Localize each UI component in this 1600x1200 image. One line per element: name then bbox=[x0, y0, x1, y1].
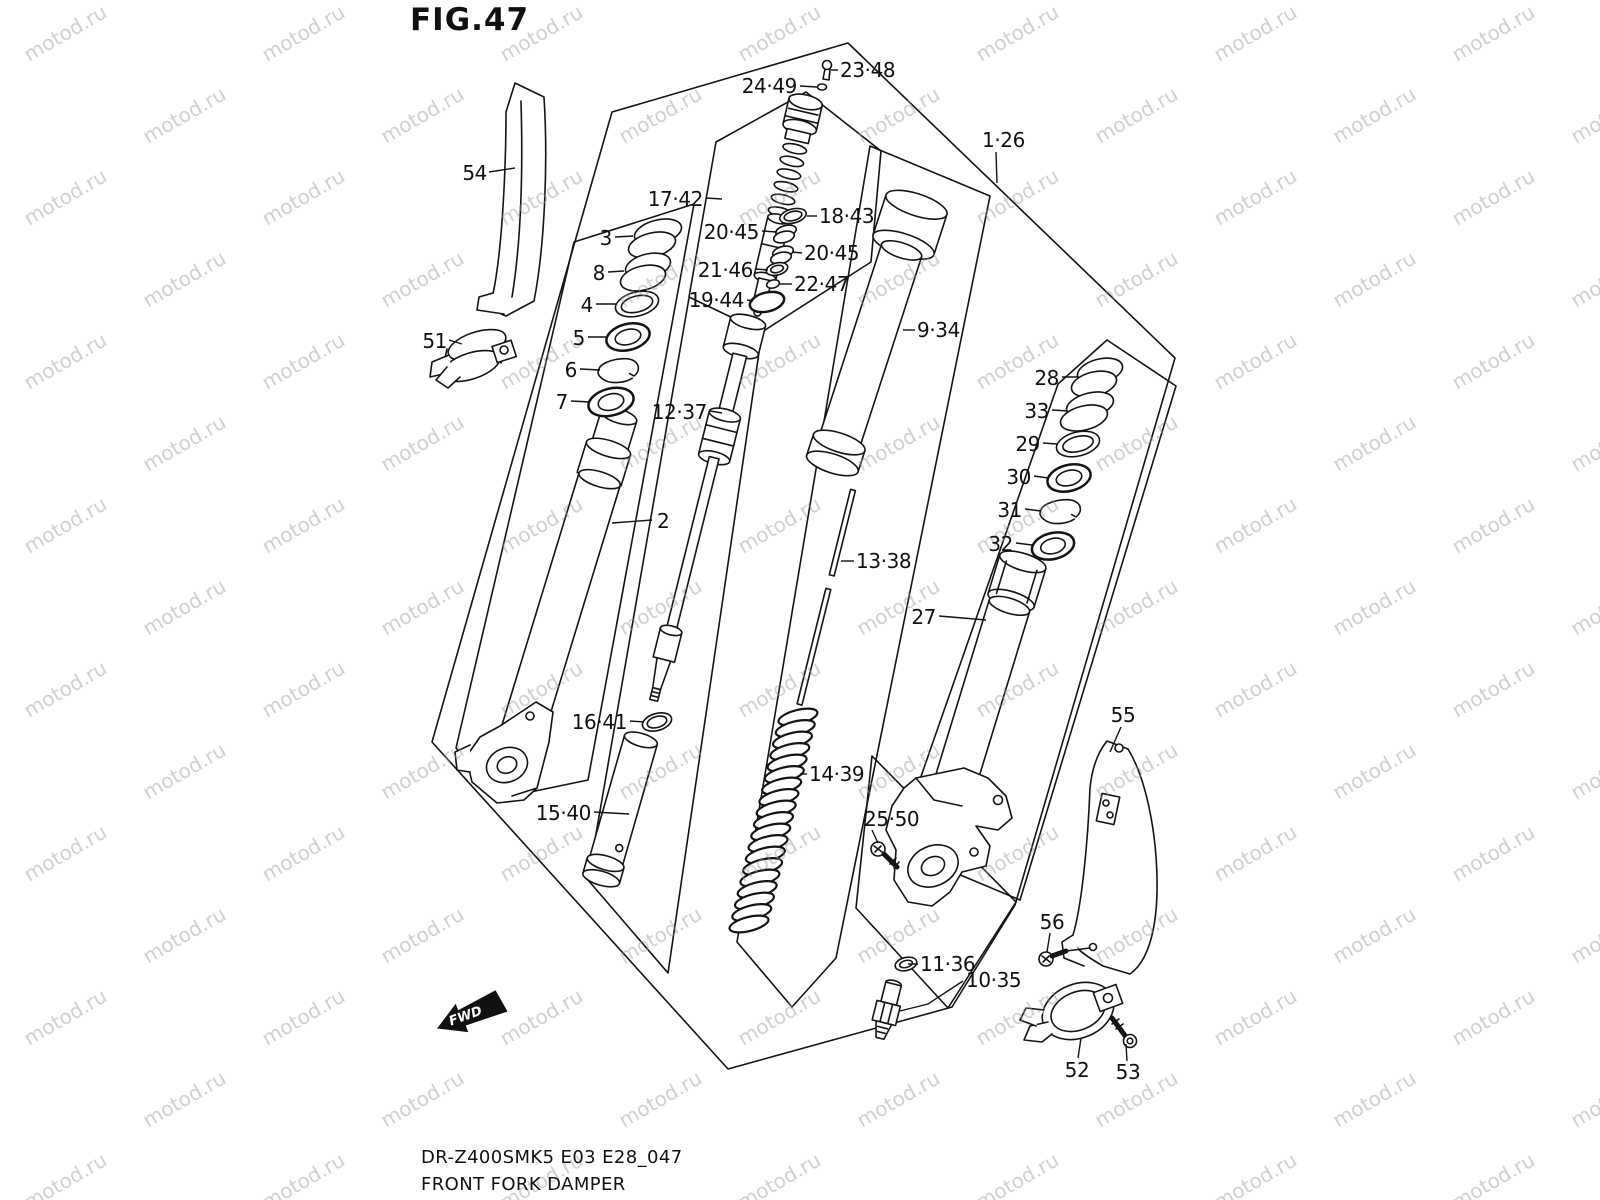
part-label-16-23·48: 23·48 bbox=[840, 58, 895, 82]
watermark-text: motod.ru bbox=[496, 820, 587, 887]
oil-seal-30 bbox=[1045, 460, 1094, 496]
part-label-26-28: 28 bbox=[1034, 366, 1059, 390]
watermark-text: motod.ru bbox=[1448, 656, 1539, 723]
watermark-text: motod.ru bbox=[377, 410, 468, 477]
leader-line-23-16·41 bbox=[630, 721, 644, 722]
leader-line-8-2 bbox=[612, 520, 652, 523]
watermark-text: motod.ru bbox=[1448, 984, 1539, 1051]
watermark-text: motod.ru bbox=[20, 820, 111, 887]
watermark-text: motod.ru bbox=[20, 492, 111, 559]
watermark-text: motod.ru bbox=[1210, 0, 1301, 66]
watermark-text: motod.ru bbox=[20, 0, 111, 66]
o-ring-19-44 bbox=[748, 289, 787, 316]
snap-ring-6 bbox=[597, 356, 641, 385]
part-label-33-25·50: 25·50 bbox=[864, 807, 919, 831]
part-label-10-18·43: 18·43 bbox=[819, 204, 874, 228]
part-label-36-56: 56 bbox=[1040, 910, 1065, 934]
part-label-1-51: 51 bbox=[422, 329, 447, 353]
part-label-31-32: 32 bbox=[988, 532, 1013, 556]
part-label-19-9·34: 9·34 bbox=[917, 318, 960, 342]
leader-line-7-7 bbox=[571, 401, 590, 402]
damper-valve-10-35 bbox=[868, 978, 906, 1042]
part-label-8-2: 2 bbox=[657, 509, 669, 533]
exploded-parts-diagram: FWD motod.rumotod.rumotod.rumotod.rumoto… bbox=[0, 0, 1600, 1200]
part-label-4-4: 4 bbox=[581, 293, 593, 317]
watermark-text: motod.ru bbox=[1567, 1066, 1600, 1133]
watermark-text: motod.ru bbox=[1567, 82, 1600, 149]
footer-model-code: DR-Z400SMK5 E03 E28_047 bbox=[421, 1147, 683, 1168]
watermark-text: motod.ru bbox=[377, 574, 468, 641]
stopper-ring-16-41 bbox=[640, 710, 674, 735]
part-label-0-54: 54 bbox=[462, 161, 487, 185]
footer-figure-caption: FRONT FORK DAMPER bbox=[421, 1174, 626, 1195]
screw-23-48 bbox=[823, 61, 832, 81]
watermark-text: motod.ru bbox=[734, 1148, 825, 1200]
watermark-text: motod.ru bbox=[972, 0, 1063, 66]
watermark-text: motod.ru bbox=[1210, 984, 1301, 1051]
watermark-text: motod.ru bbox=[1448, 1148, 1539, 1200]
part-label-38-53: 53 bbox=[1116, 1060, 1141, 1084]
watermark-layer: motod.rumotod.rumotod.rumotod.rumotod.ru… bbox=[0, 0, 1600, 1200]
watermark-text: motod.ru bbox=[139, 82, 230, 149]
part-label-11-20·45: 20·45 bbox=[704, 220, 759, 244]
watermark-text: motod.ru bbox=[258, 820, 349, 887]
watermark-text: motod.ru bbox=[734, 0, 825, 66]
watermark-text: motod.ru bbox=[734, 984, 825, 1051]
part-label-3-8: 8 bbox=[593, 261, 605, 285]
leader-line-3-8 bbox=[608, 271, 624, 272]
leader-line-37-52 bbox=[1078, 1038, 1081, 1058]
part-label-12-20·45: 20·45 bbox=[804, 241, 859, 265]
watermark-text: motod.ru bbox=[139, 902, 230, 969]
leader-line-17-24·49 bbox=[800, 86, 817, 87]
watermark-text: motod.ru bbox=[1091, 574, 1182, 641]
watermark-text: motod.ru bbox=[496, 984, 587, 1051]
axle-holder-right bbox=[886, 768, 1012, 906]
part-label-27-33: 33 bbox=[1024, 399, 1049, 423]
leader-line-12-20·45 bbox=[792, 252, 802, 253]
watermark-text: motod.ru bbox=[139, 1066, 230, 1133]
watermark-text: motod.ru bbox=[139, 410, 230, 477]
watermark-text: motod.ru bbox=[377, 738, 468, 805]
watermark-text: motod.ru bbox=[1210, 164, 1301, 231]
leader-line-18-1·26 bbox=[996, 152, 997, 183]
watermark-text: motod.ru bbox=[615, 82, 706, 149]
part-label-23-16·41: 16·41 bbox=[572, 710, 627, 734]
watermark-text: motod.ru bbox=[1448, 820, 1539, 887]
part-label-9-17·42: 17·42 bbox=[648, 187, 703, 211]
watermark-text: motod.ru bbox=[377, 82, 468, 149]
leader-line-15-19·44 bbox=[747, 300, 753, 301]
part-label-21-13·38: 13·38 bbox=[856, 549, 911, 573]
watermark-text: motod.ru bbox=[972, 1148, 1063, 1200]
watermark-text: motod.ru bbox=[1329, 246, 1420, 313]
watermark-text: motod.ru bbox=[377, 902, 468, 969]
watermark-text: motod.ru bbox=[258, 164, 349, 231]
watermark-text: motod.ru bbox=[258, 1148, 349, 1200]
leader-line-11-20·45 bbox=[762, 231, 777, 232]
watermark-text: motod.ru bbox=[972, 164, 1063, 231]
part-label-32-55: 55 bbox=[1111, 703, 1136, 727]
watermark-text: motod.ru bbox=[258, 656, 349, 723]
part-label-20-12·37: 12·37 bbox=[652, 400, 707, 424]
watermark-text: motod.ru bbox=[1567, 246, 1600, 313]
part-label-7-7: 7 bbox=[556, 390, 568, 414]
watermark-text: motod.ru bbox=[1329, 1066, 1420, 1133]
leader-line-6-6 bbox=[580, 369, 600, 370]
watermark-text: motod.ru bbox=[853, 1066, 944, 1133]
part-label-6-6: 6 bbox=[565, 358, 577, 382]
watermark-text: motod.ru bbox=[20, 656, 111, 723]
watermark-text: motod.ru bbox=[1448, 492, 1539, 559]
leader-line-29-30 bbox=[1034, 476, 1048, 478]
leader-line-27-33 bbox=[1052, 410, 1068, 411]
part-label-28-29: 29 bbox=[1015, 432, 1040, 456]
watermark-text: motod.ru bbox=[139, 574, 230, 641]
leader-line-38-53 bbox=[1126, 1044, 1127, 1061]
part-label-13-21·46: 21·46 bbox=[698, 258, 753, 282]
watermark-text: motod.ru bbox=[1091, 82, 1182, 149]
watermark-text: motod.ru bbox=[1329, 410, 1420, 477]
leader-line-25-27 bbox=[939, 616, 986, 620]
watermark-text: motod.ru bbox=[1448, 328, 1539, 395]
watermark-text: motod.ru bbox=[615, 902, 706, 969]
watermark-text: motod.ru bbox=[20, 328, 111, 395]
leader-line-36-56 bbox=[1047, 933, 1050, 952]
part-label-35-10·35: 10·35 bbox=[966, 968, 1021, 992]
part-label-29-30: 30 bbox=[1006, 465, 1031, 489]
watermark-text: motod.ru bbox=[20, 164, 111, 231]
watermark-text: motod.ru bbox=[1210, 328, 1301, 395]
watermark-text: motod.ru bbox=[139, 738, 230, 805]
part-label-24-15·40: 15·40 bbox=[536, 801, 591, 825]
washer-24-49 bbox=[818, 84, 827, 90]
leader-line-28-29 bbox=[1043, 443, 1057, 444]
watermark-text: motod.ru bbox=[258, 984, 349, 1051]
part-label-14-22·47: 22·47 bbox=[794, 272, 849, 296]
watermark-text: motod.ru bbox=[734, 492, 825, 559]
leader-line-2-3 bbox=[615, 236, 633, 237]
oil-seal-5 bbox=[604, 319, 653, 355]
fork-spring-14-39 bbox=[728, 705, 819, 935]
watermark-text: motod.ru bbox=[1567, 902, 1600, 969]
watermark-text: motod.ru bbox=[1210, 820, 1301, 887]
bolt-53 bbox=[1112, 1018, 1137, 1048]
watermark-text: motod.ru bbox=[1329, 902, 1420, 969]
watermark-text: motod.ru bbox=[1210, 1148, 1301, 1200]
part-label-17-24·49: 24·49 bbox=[742, 74, 797, 98]
part-label-22-14·39: 14·39 bbox=[809, 762, 864, 786]
watermark-text: motod.ru bbox=[615, 1066, 706, 1133]
watermark-text: motod.ru bbox=[1448, 0, 1539, 66]
watermark-text: motod.ru bbox=[377, 246, 468, 313]
watermark-text: motod.ru bbox=[1567, 410, 1600, 477]
leader-line-35-10·35 bbox=[900, 981, 963, 1011]
watermark-text: motod.ru bbox=[1448, 164, 1539, 231]
watermark-text: motod.ru bbox=[258, 492, 349, 559]
part-label-5-5: 5 bbox=[573, 326, 585, 350]
part-label-15-19·44: 19·44 bbox=[689, 288, 744, 312]
watermark-text: motod.ru bbox=[258, 328, 349, 395]
part-label-25-27: 27 bbox=[911, 605, 936, 629]
leader-line-31-32 bbox=[1016, 543, 1032, 545]
watermark-text: motod.ru bbox=[1210, 656, 1301, 723]
watermark-text: motod.ru bbox=[1567, 574, 1600, 641]
leader-line-33-25·50 bbox=[872, 830, 878, 843]
watermark-text: motod.ru bbox=[1091, 246, 1182, 313]
watermark-text: motod.ru bbox=[258, 0, 349, 66]
watermark-text: motod.ru bbox=[1329, 82, 1420, 149]
part-label-37-52: 52 bbox=[1065, 1058, 1090, 1082]
part-label-18-1·26: 1·26 bbox=[982, 128, 1025, 152]
leader-line-13-21·46 bbox=[756, 269, 768, 270]
part-label-2-3: 3 bbox=[600, 226, 612, 250]
watermark-text: motod.ru bbox=[20, 1148, 111, 1200]
watermark-text: motod.ru bbox=[1329, 574, 1420, 641]
watermark-text: motod.ru bbox=[377, 1066, 468, 1133]
watermark-text: motod.ru bbox=[1329, 738, 1420, 805]
watermark-text: motod.ru bbox=[1210, 492, 1301, 559]
leader-line-9-17·42 bbox=[706, 198, 722, 199]
watermark-text: motod.ru bbox=[1567, 738, 1600, 805]
part-label-30-31: 31 bbox=[997, 498, 1022, 522]
watermark-text: motod.ru bbox=[139, 246, 230, 313]
parts-catalog-page: FWD motod.rumotod.rumotod.rumotod.rumoto… bbox=[0, 0, 1600, 1200]
watermark-text: motod.ru bbox=[20, 984, 111, 1051]
figure-title: FIG.47 bbox=[410, 2, 529, 38]
